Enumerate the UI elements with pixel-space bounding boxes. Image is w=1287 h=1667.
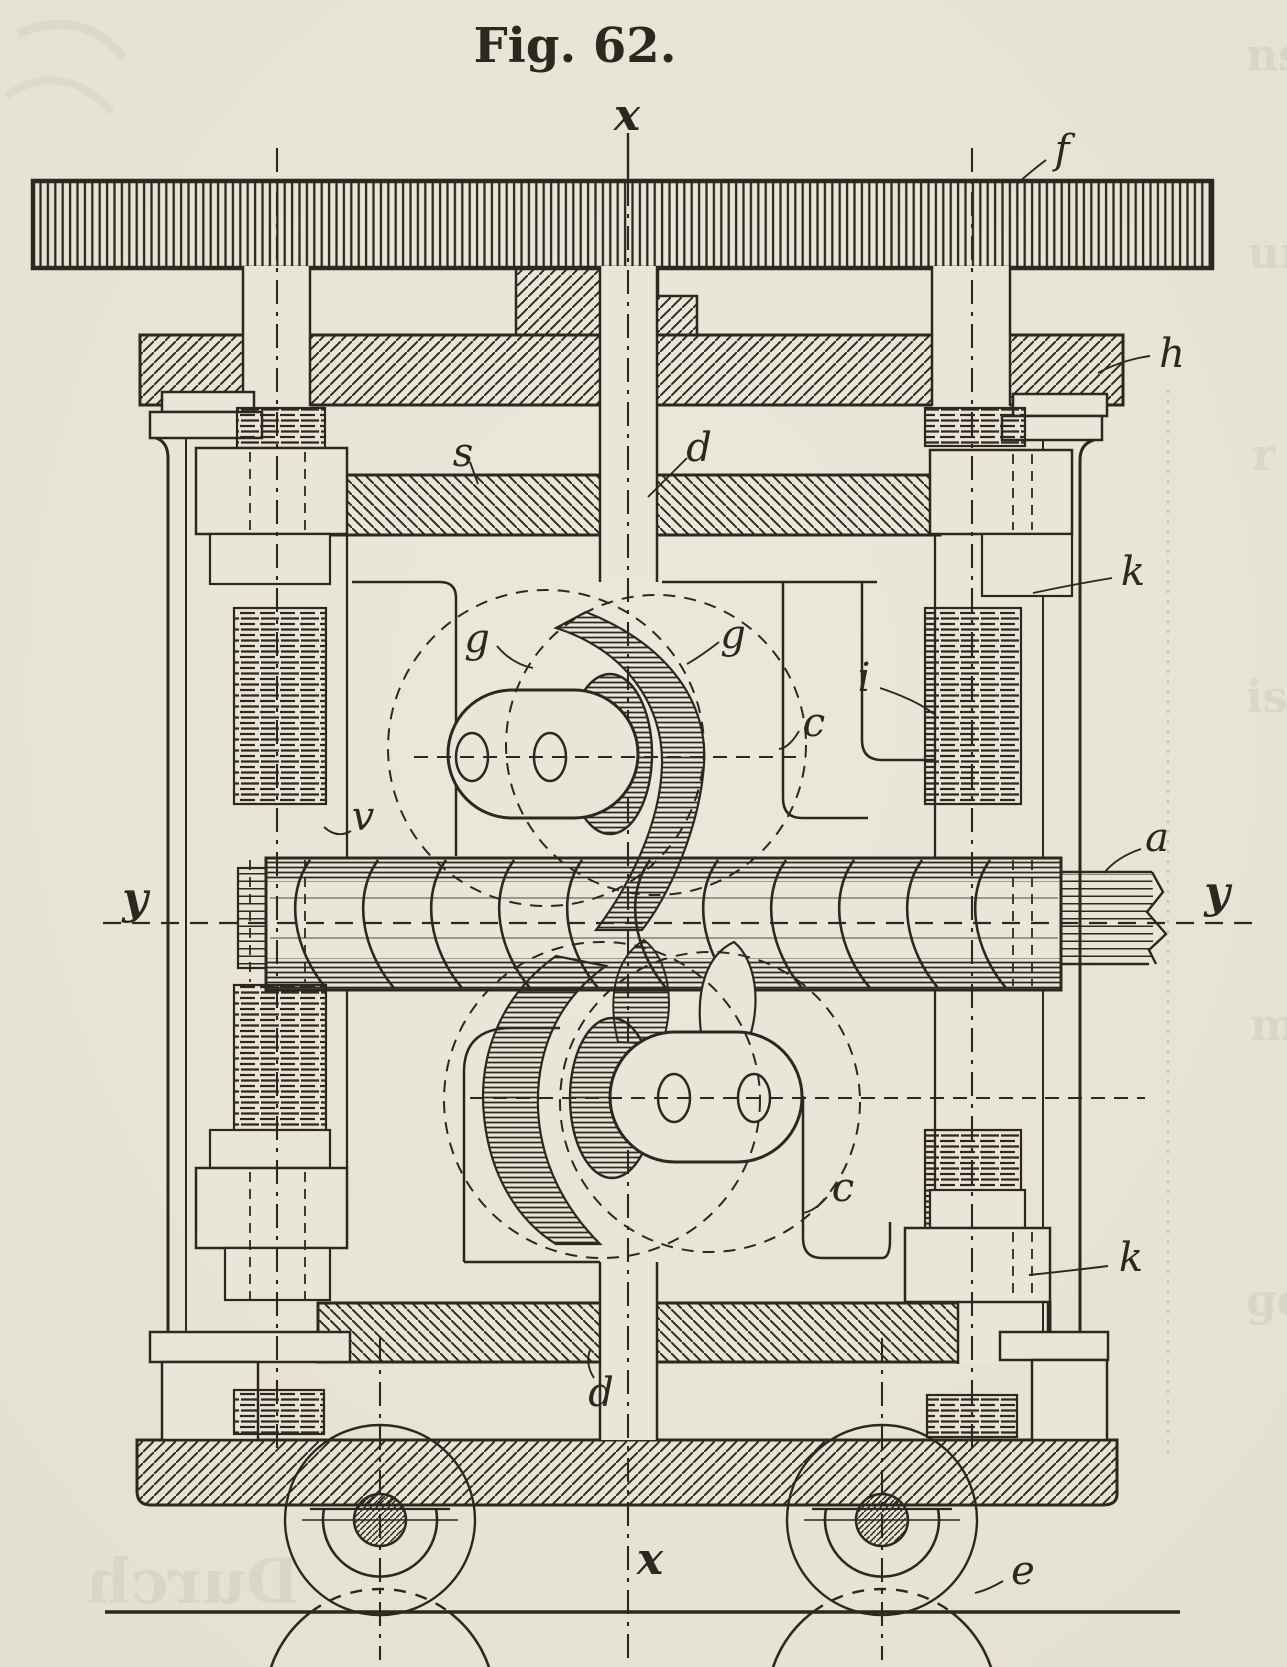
left-spindle-thread	[237, 408, 325, 448]
figure-62-technical-drawing: ns ur r is m ge Durch	[0, 0, 1287, 1667]
label-a: a	[1145, 815, 1169, 861]
label-s: s	[453, 430, 474, 476]
right-foot-ledge	[1000, 1332, 1108, 1360]
right-post-cap	[1013, 394, 1107, 416]
ghost-mark: m	[1250, 1000, 1287, 1051]
label-i: i	[858, 655, 871, 701]
label-x-bottom: x	[636, 1534, 664, 1585]
label-d-upper: d	[686, 425, 712, 471]
label-v: v	[352, 794, 375, 840]
left-foot-ledge	[150, 1332, 350, 1362]
ghost-mark: ur	[1248, 228, 1287, 279]
label-k-lower: k	[1119, 1235, 1143, 1281]
rack-bar-f	[33, 181, 1212, 268]
left-spindle-thread	[234, 608, 326, 804]
left-upper-nut	[196, 448, 347, 534]
label-c-lower: c	[832, 1165, 854, 1211]
ghost-mark: ge	[1246, 1275, 1287, 1326]
label-g-left: g	[464, 616, 490, 662]
label-k-upper: k	[1121, 549, 1145, 595]
ghost-word: Durch	[86, 1545, 300, 1618]
label-y-left: y	[121, 873, 151, 924]
right-foot	[1032, 1360, 1107, 1440]
shaft-left-stub	[238, 868, 266, 968]
right-upper-nut-k	[930, 450, 1072, 534]
ghost-mark: ns	[1246, 30, 1287, 81]
label-g-right: g	[720, 612, 746, 658]
right-upper-guide	[982, 534, 1072, 596]
left-spindle-thread	[234, 1390, 324, 1434]
label-e: e	[1011, 1548, 1035, 1594]
label-d-lower: d	[588, 1370, 614, 1416]
ghost-mark: r	[1252, 430, 1276, 481]
left-upper-guide	[210, 534, 330, 584]
label-c-upper: c	[803, 700, 825, 746]
label-y-right: y	[1203, 867, 1233, 918]
right-spindle-thread	[925, 408, 1025, 446]
right-lower-guide	[930, 1190, 1025, 1228]
shaft-right-end	[1061, 874, 1153, 962]
left-lower-nut-k	[196, 1168, 347, 1248]
figure-title: Fig. 62.	[474, 18, 677, 74]
lower-crossbar-d	[318, 1303, 1050, 1362]
right-lower-nut-k	[905, 1228, 1050, 1302]
left-lower-guide	[210, 1130, 330, 1168]
ghost-mark: is	[1246, 672, 1287, 723]
label-x-top: x	[613, 90, 641, 141]
label-h: h	[1159, 331, 1185, 377]
